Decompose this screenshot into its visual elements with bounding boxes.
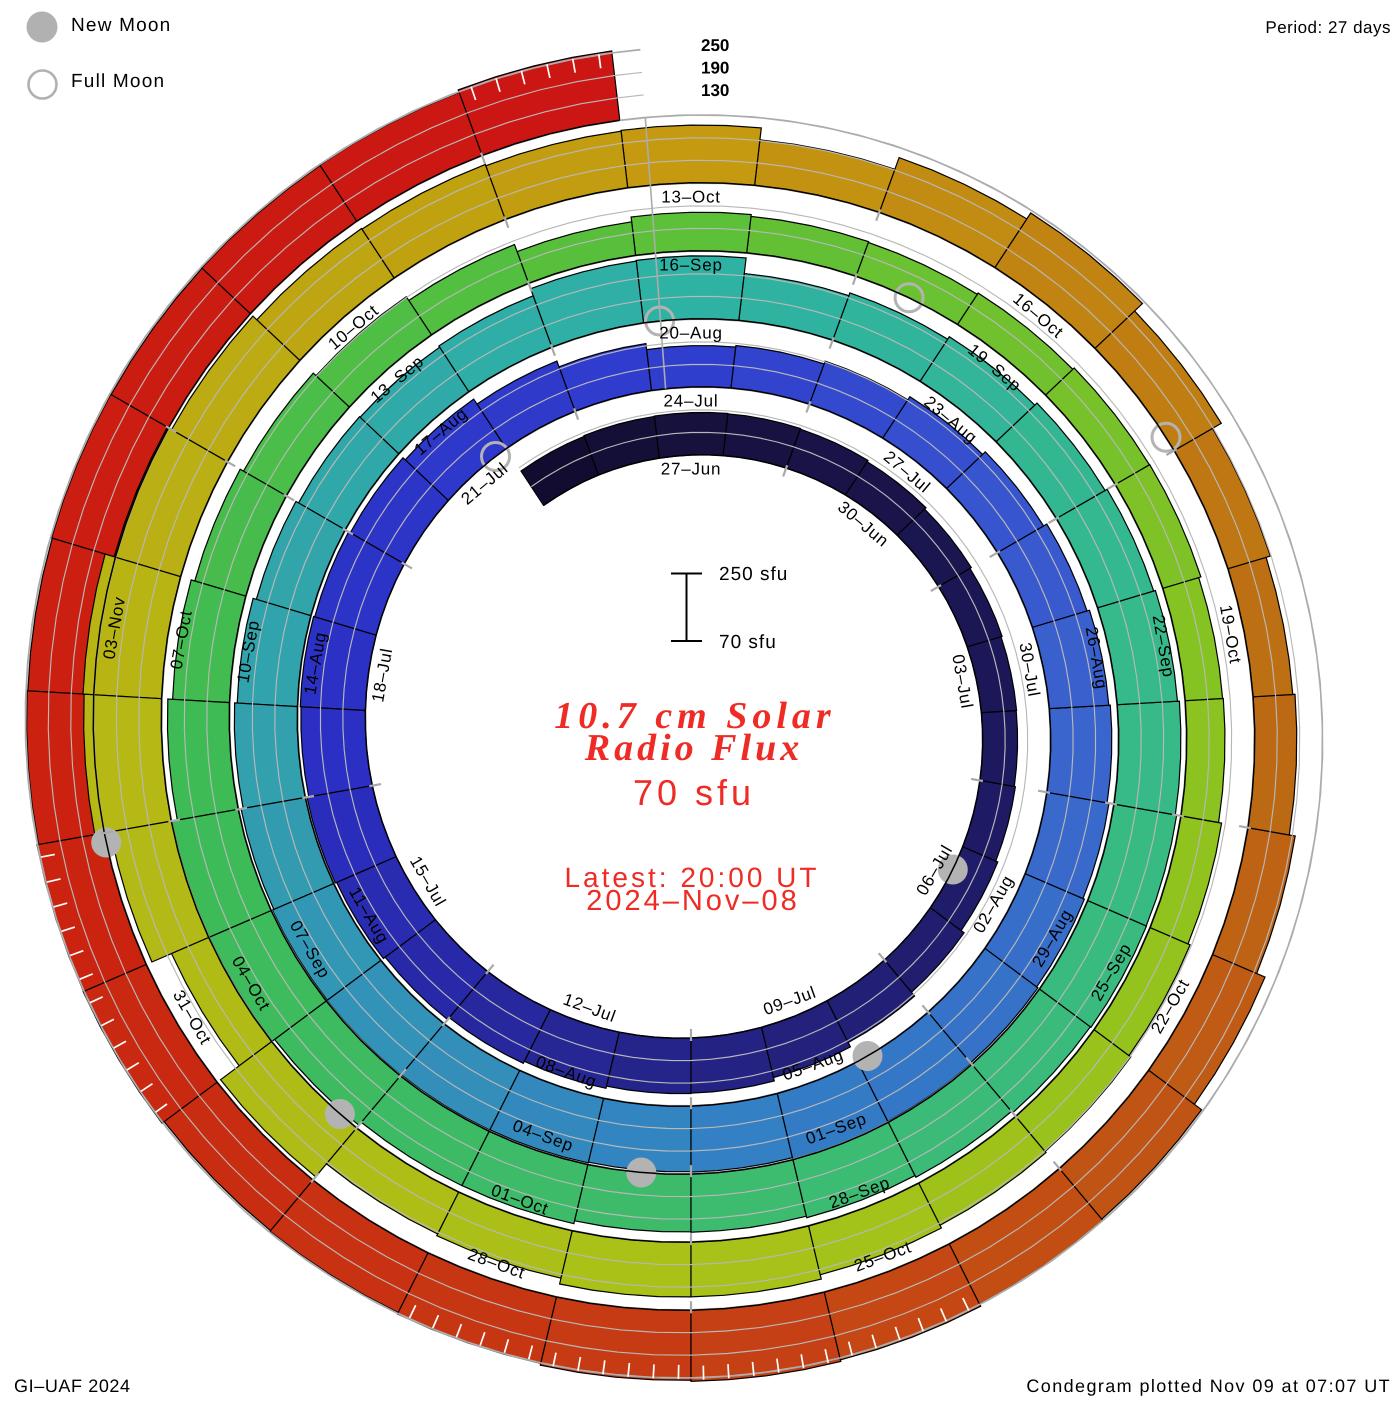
svg-text:GI–UAF 2024: GI–UAF 2024: [14, 1376, 131, 1396]
svg-text:13–Oct: 13–Oct: [661, 187, 721, 206]
svg-text:Period: 27 days: Period: 27 days: [1265, 18, 1391, 37]
svg-text:20–Aug: 20–Aug: [659, 323, 722, 342]
svg-text:24–Jul: 24–Jul: [664, 391, 719, 410]
svg-text:27–Jun: 27–Jun: [661, 459, 722, 478]
svg-text:130: 130: [701, 81, 729, 100]
svg-text:250: 250: [701, 36, 729, 55]
svg-text:16–Sep: 16–Sep: [659, 255, 722, 274]
svg-text:250 sfu: 250 sfu: [719, 564, 788, 585]
svg-text:190: 190: [701, 59, 729, 78]
svg-text:70 sfu: 70 sfu: [719, 632, 777, 653]
svg-text:70 sfu: 70 sfu: [633, 772, 755, 813]
svg-text:New Moon: New Moon: [71, 15, 171, 36]
svg-text:2024–Nov–08: 2024–Nov–08: [586, 885, 800, 917]
svg-text:Radio Flux: Radio Flux: [584, 727, 803, 769]
svg-text:Full Moon: Full Moon: [71, 71, 165, 92]
svg-text:Condegram plotted Nov 09 at 07: Condegram plotted Nov 09 at 07:07 UT: [1026, 1376, 1391, 1396]
